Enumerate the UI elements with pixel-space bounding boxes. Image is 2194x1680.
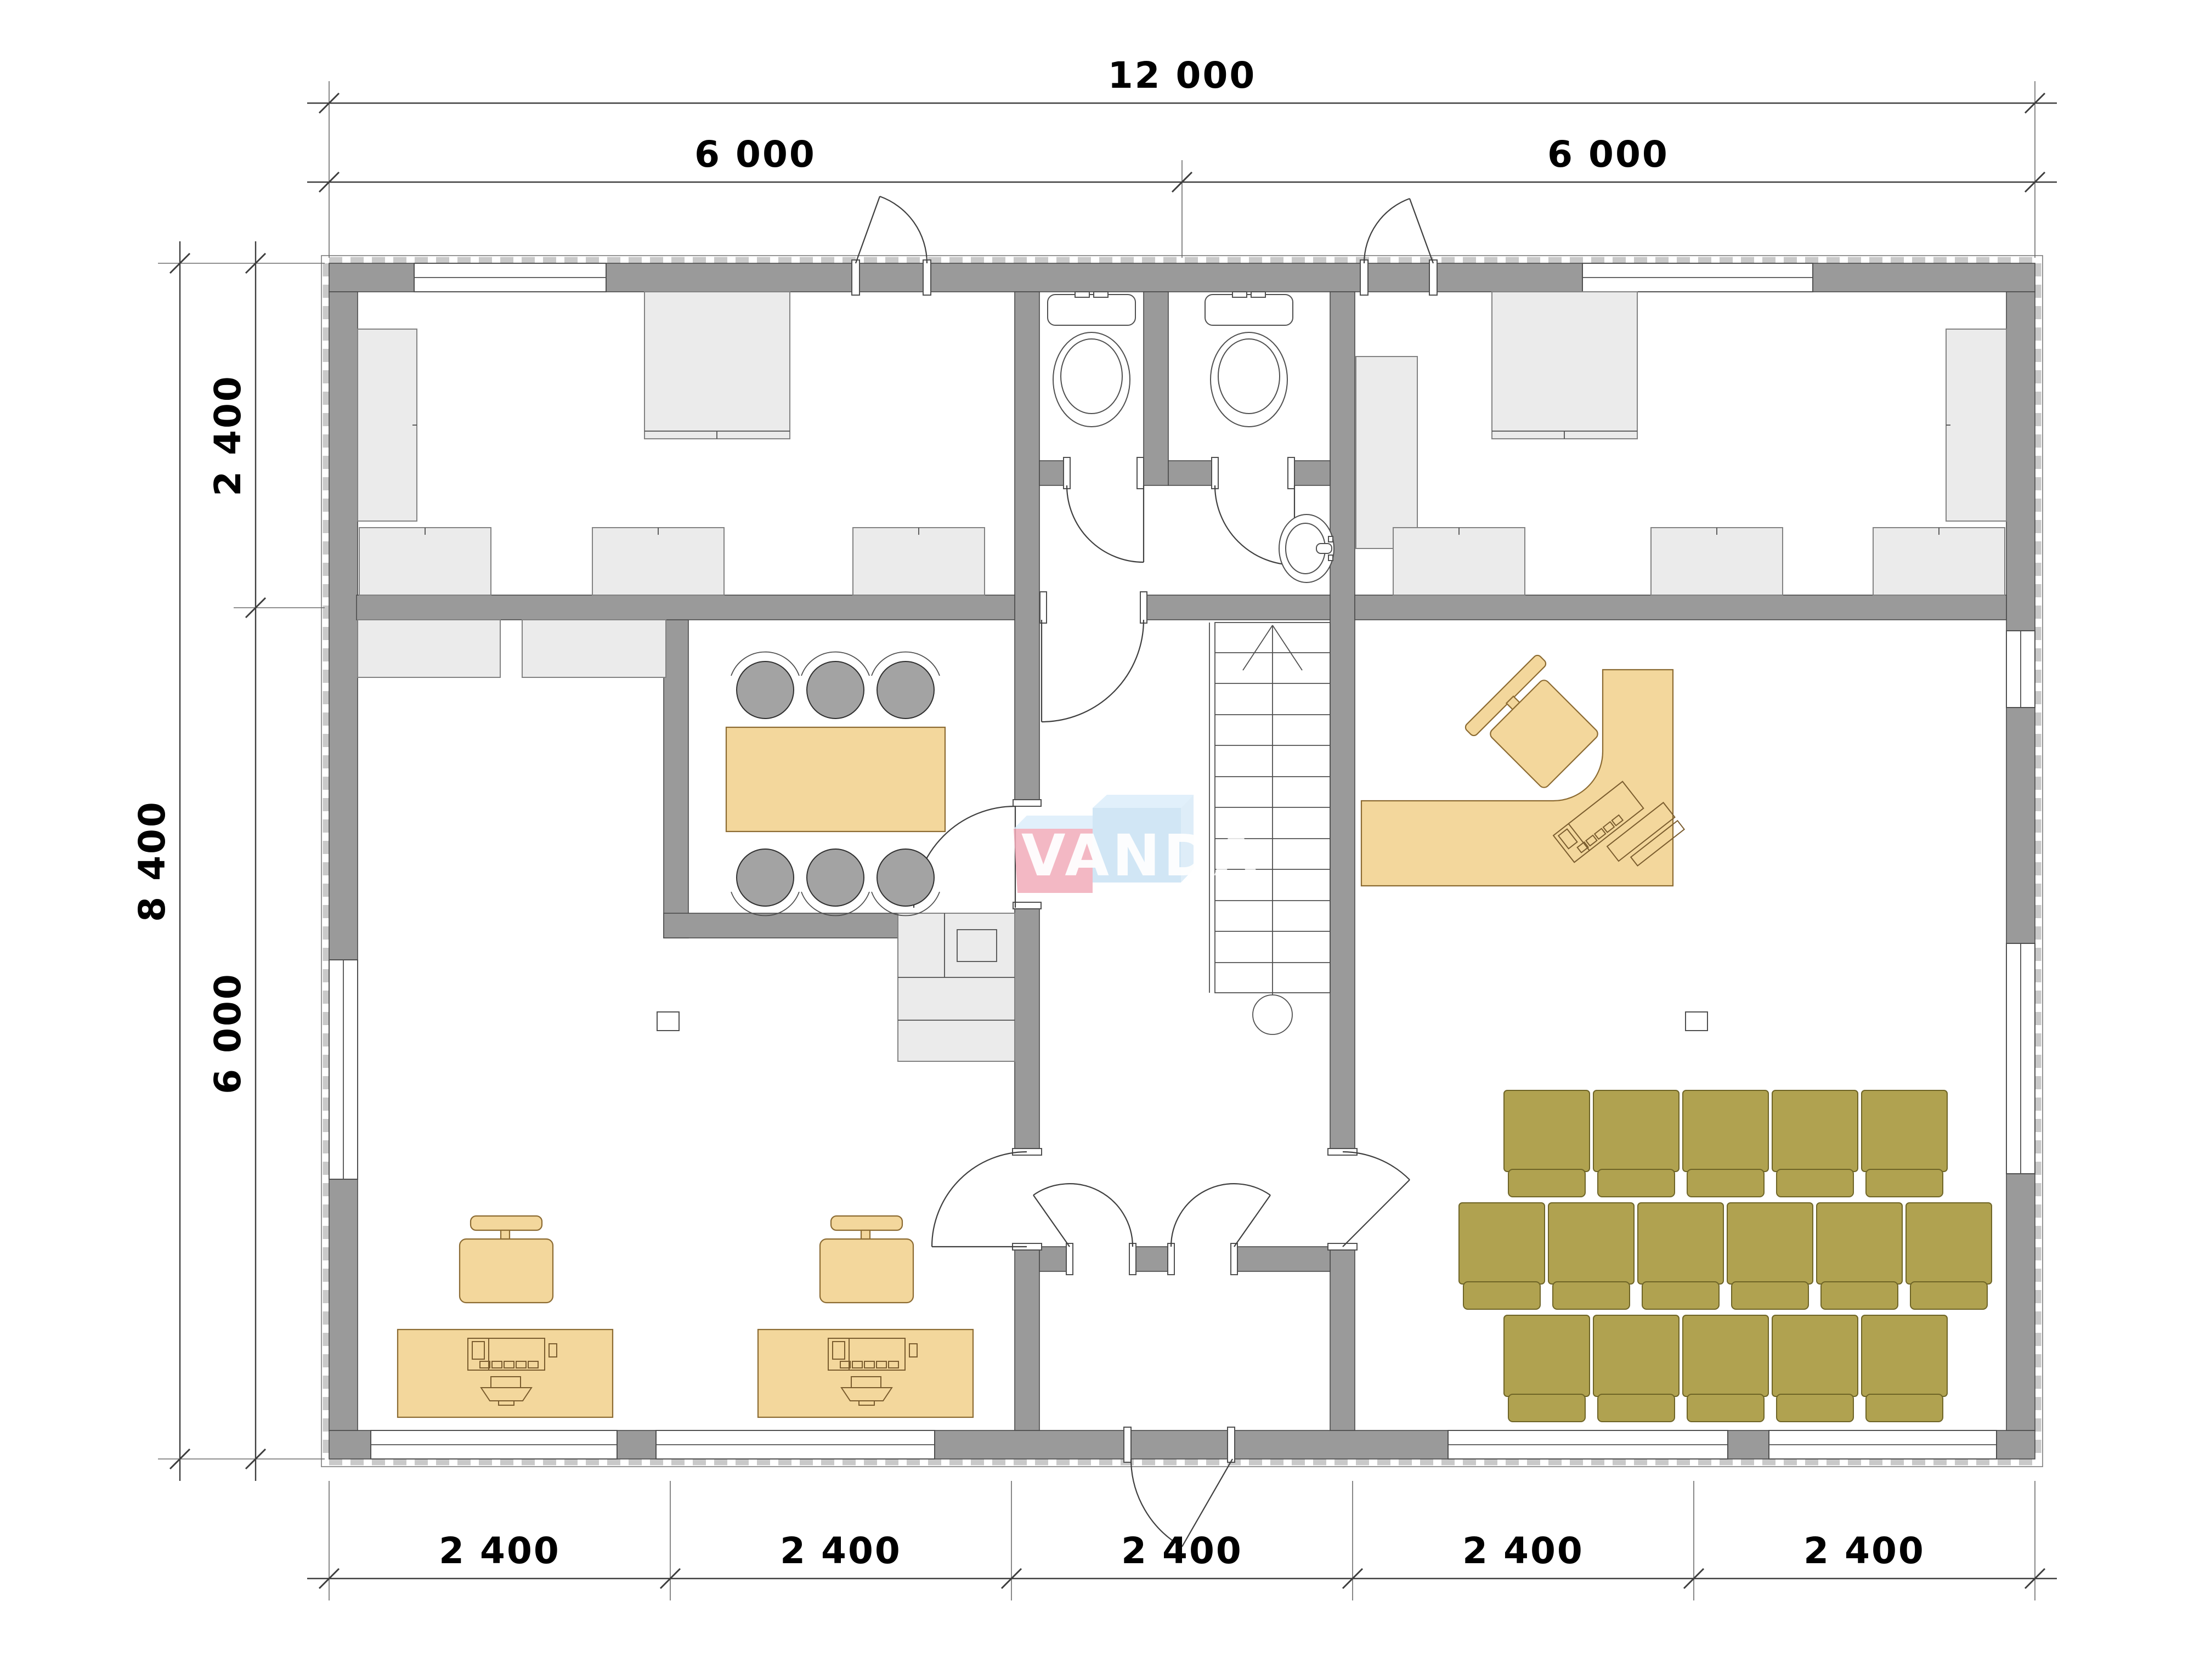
window-top-right [1582,263,1813,292]
dim-side-bottom: 6 000 [207,972,249,1094]
conference-chair-icon [1504,1315,1590,1422]
conference-chair-icon [1683,1090,1768,1197]
cabinet [592,528,724,595]
workstation-1 [398,1216,613,1417]
wall-sockets [657,1012,1707,1031]
socket-icon [1686,1012,1707,1031]
door-left-room [932,1149,1042,1250]
conference-chair-icon [1548,1203,1634,1309]
cabinet [1356,357,1417,548]
conference-chair-icon [1638,1203,1723,1309]
cabinet [1946,329,2006,521]
counter [358,620,500,677]
dim-bottom-3: 2 400 [1121,1530,1243,1572]
sanitary-fixtures [1048,292,1334,582]
dim-top-right: 6 000 [1547,133,1669,176]
meeting-chair-icon [731,849,799,915]
cabinet [1393,528,1525,595]
watermark-blue-box-bevel [1093,795,1194,808]
conference-chair-icon [1727,1203,1813,1309]
meeting-chair-icon [872,652,940,719]
conference-chair-icon [1683,1315,1768,1422]
vanda-watermark: VANDA [1014,795,1262,893]
toilet-icon [1048,292,1135,427]
conference-chair-icon [1906,1203,1992,1309]
dim-side-total: 8 400 [131,800,173,922]
meeting-chair-icon [731,652,799,719]
window-bottom-2 [656,1430,935,1459]
toilet-icon [1205,292,1293,427]
window-top-left [414,263,606,292]
cabinet [359,528,491,595]
dim-bottom-5: 2 400 [1803,1530,1925,1572]
cabinet [853,528,985,595]
conference-chair-icon [1772,1090,1858,1197]
watermark-text: VANDA [1021,822,1262,889]
dim-bottom-4: 2 400 [1462,1530,1584,1572]
meeting-table [726,727,945,831]
cabinet [1873,528,2005,595]
counter [522,620,666,677]
socket-icon [657,1012,679,1031]
conference-chair-icon [1772,1315,1858,1422]
conference-chairs [1459,1090,1992,1422]
window-left [329,960,358,1179]
door-toilet-stall-1 [1064,457,1144,562]
floor-plan-canvas: VANDA 12 000 6 000 6 000 8 400 2 400 6 0… [0,0,2194,1680]
dim-side-top: 2 400 [207,375,249,496]
door-sanitary-hall [1040,592,1147,722]
dim-bottom-1: 2 400 [439,1530,561,1572]
kitchenette [898,913,1015,1061]
conference-chair-icon [1504,1090,1590,1197]
cabinet [1651,528,1783,595]
dim-bottom-2: 2 400 [780,1530,902,1572]
dim-top-total: 12 000 [1108,54,1257,97]
window-bottom-1 [371,1430,617,1459]
conference-chair-icon [1593,1090,1679,1197]
conference-chair-icon [1862,1090,1947,1197]
sink-icon [1279,514,1334,582]
meeting-chair-icon [801,652,869,719]
dim-top-left: 6 000 [694,133,816,176]
cabinet [644,292,790,439]
conference-chair-icon [1862,1315,1947,1422]
conference-chair-icon [1817,1203,1902,1309]
window-bottom-3 [1448,1430,1728,1459]
conference-chair-icon [1459,1203,1545,1309]
door-right-room [1328,1149,1410,1250]
window-right-large [2006,943,2035,1174]
window-right-small [2006,631,2035,708]
reception-chair [1464,654,1609,799]
cabinet [1492,292,1637,439]
meeting-chair-icon [801,849,869,915]
conference-chair-icon [1593,1315,1679,1422]
floor-plan-page: VANDA 12 000 6 000 6 000 8 400 2 400 6 0… [0,0,2194,1680]
meeting-chair-icon [872,849,940,915]
window-bottom-4 [1769,1430,1997,1459]
casework [358,292,2006,1061]
cabinet [358,329,417,521]
